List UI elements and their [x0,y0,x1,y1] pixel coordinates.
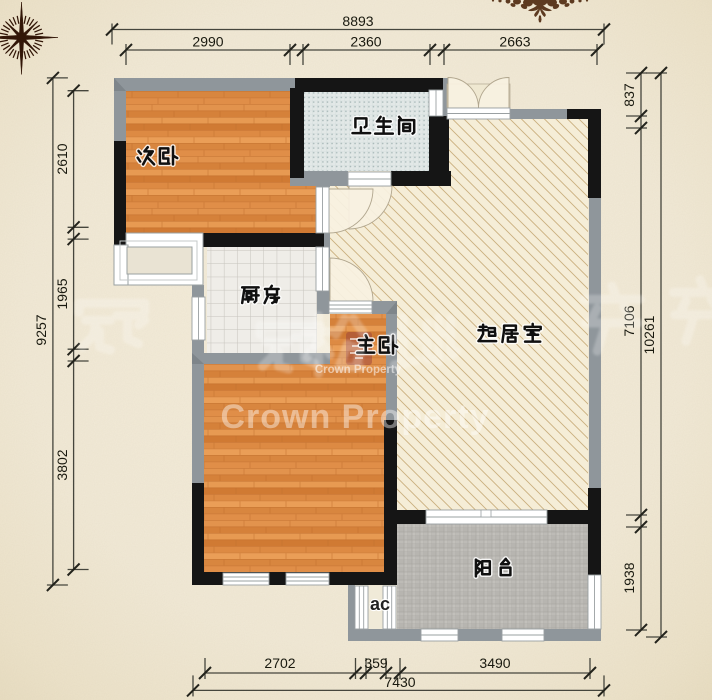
svg-text:Crown Property: Crown Property [315,364,402,376]
svg-text:2360: 2360 [350,34,381,50]
svg-text:7430: 7430 [384,674,415,690]
svg-text:2702: 2702 [264,655,295,671]
svg-text:8893: 8893 [342,13,373,29]
svg-text:10261: 10261 [641,315,657,354]
svg-text:Crown Property: Crown Property [220,398,489,436]
svg-text:1938: 1938 [621,562,637,593]
svg-text:2990: 2990 [192,34,223,50]
svg-text:9257: 9257 [33,314,49,345]
svg-text:359: 359 [364,655,388,671]
svg-text:837: 837 [621,83,637,107]
svg-text:3802: 3802 [54,449,70,480]
svg-text:2610: 2610 [54,143,70,174]
svg-text:ac: ac [370,594,390,614]
svg-text:1965: 1965 [54,278,70,309]
svg-text:3490: 3490 [479,655,510,671]
svg-text:2663: 2663 [499,34,530,50]
